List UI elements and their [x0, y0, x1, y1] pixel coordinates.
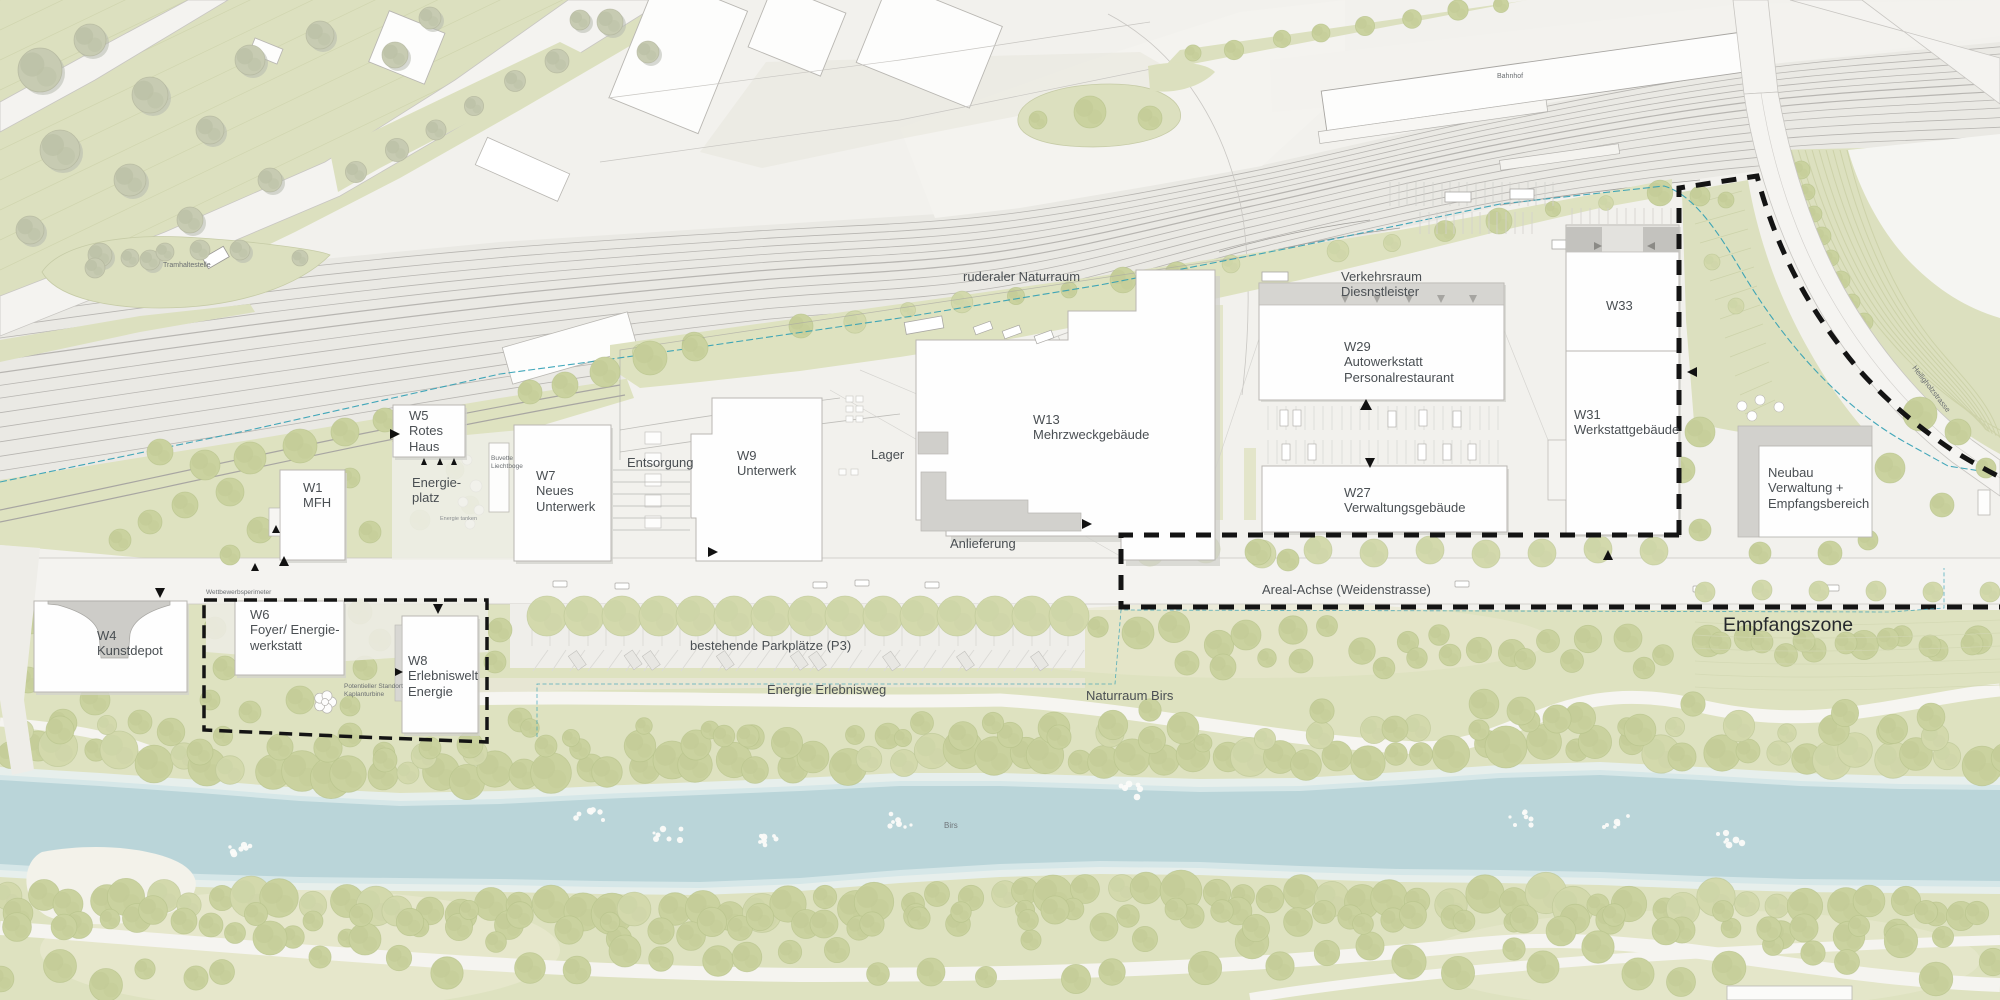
svg-text:Erlebniswelt: Erlebniswelt [408, 668, 478, 683]
svg-text:Empfangszone: Empfangszone [1723, 614, 1853, 636]
svg-text:W13: W13 [1033, 412, 1060, 427]
svg-text:Autowerkstatt: Autowerkstatt [1344, 354, 1423, 369]
svg-text:Tramhaltestelle: Tramhaltestelle [163, 262, 211, 269]
svg-text:Unterwerk: Unterwerk [737, 463, 797, 478]
svg-text:Mehrzweckgebäude: Mehrzweckgebäude [1033, 427, 1149, 442]
svg-text:Diesnstleister: Diesnstleister [1341, 284, 1420, 299]
svg-text:Energie tanken: Energie tanken [440, 516, 477, 522]
svg-text:W33: W33 [1606, 298, 1633, 313]
svg-text:Bahnhof: Bahnhof [1497, 73, 1523, 80]
svg-text:W8: W8 [408, 653, 428, 668]
svg-text:W29: W29 [1344, 339, 1371, 354]
svg-text:Areal-Achse (Weidenstrasse): Areal-Achse (Weidenstrasse) [1262, 582, 1431, 597]
svg-text:Liechtboge: Liechtboge [491, 463, 523, 470]
svg-text:Birs: Birs [944, 821, 958, 830]
svg-text:MFH: MFH [303, 495, 331, 510]
svg-text:Neues: Neues [536, 483, 574, 498]
svg-text:Personalrestaurant: Personalrestaurant [1344, 370, 1454, 385]
svg-text:Kaplanturbine: Kaplanturbine [344, 691, 384, 698]
svg-text:W31: W31 [1574, 407, 1601, 422]
svg-text:werkstatt: werkstatt [249, 638, 302, 653]
svg-text:ruderaler Naturraum: ruderaler Naturraum [963, 269, 1080, 284]
svg-text:Naturraum Birs: Naturraum Birs [1086, 688, 1174, 703]
svg-text:Energie Erlebnisweg: Energie Erlebnisweg [767, 682, 886, 697]
svg-text:W27: W27 [1344, 485, 1371, 500]
svg-text:W7: W7 [536, 468, 556, 483]
svg-text:Buvette: Buvette [491, 455, 513, 462]
svg-text:Foyer/ Energie-: Foyer/ Energie- [250, 622, 340, 637]
svg-text:W5: W5 [409, 408, 429, 423]
svg-text:Energie: Energie [408, 684, 453, 699]
svg-text:W1: W1 [303, 480, 323, 495]
svg-text:Verkehrsraum: Verkehrsraum [1341, 269, 1422, 284]
svg-text:Wettbewerbsperimeter: Wettbewerbsperimeter [206, 589, 272, 596]
svg-text:Kunstdepot: Kunstdepot [97, 643, 163, 658]
svg-text:platz: platz [412, 490, 439, 505]
svg-text:Verwaltungsgebäude: Verwaltungsgebäude [1344, 500, 1465, 515]
svg-text:Unterwerk: Unterwerk [536, 499, 596, 514]
svg-text:W9: W9 [737, 448, 757, 463]
svg-text:Entsorgung: Entsorgung [627, 455, 694, 470]
svg-text:W4: W4 [97, 628, 117, 643]
svg-text:Anlieferung: Anlieferung [950, 536, 1016, 551]
svg-text:Energie-: Energie- [412, 475, 461, 490]
svg-text:Haus: Haus [409, 439, 440, 454]
svg-text:Werkstattgebäude: Werkstattgebäude [1574, 422, 1679, 437]
svg-text:Rotes: Rotes [409, 423, 443, 438]
svg-text:W6: W6 [250, 607, 270, 622]
svg-text:Verwaltung +: Verwaltung + [1768, 480, 1844, 495]
svg-text:Lager: Lager [871, 447, 905, 462]
svg-text:bestehende Parkplätze (P3): bestehende Parkplätze (P3) [690, 638, 851, 653]
svg-text:Potentieller Standort: Potentieller Standort [344, 683, 403, 690]
svg-text:Neubau: Neubau [1768, 465, 1814, 480]
svg-text:Empfangsbereich: Empfangsbereich [1768, 496, 1869, 511]
